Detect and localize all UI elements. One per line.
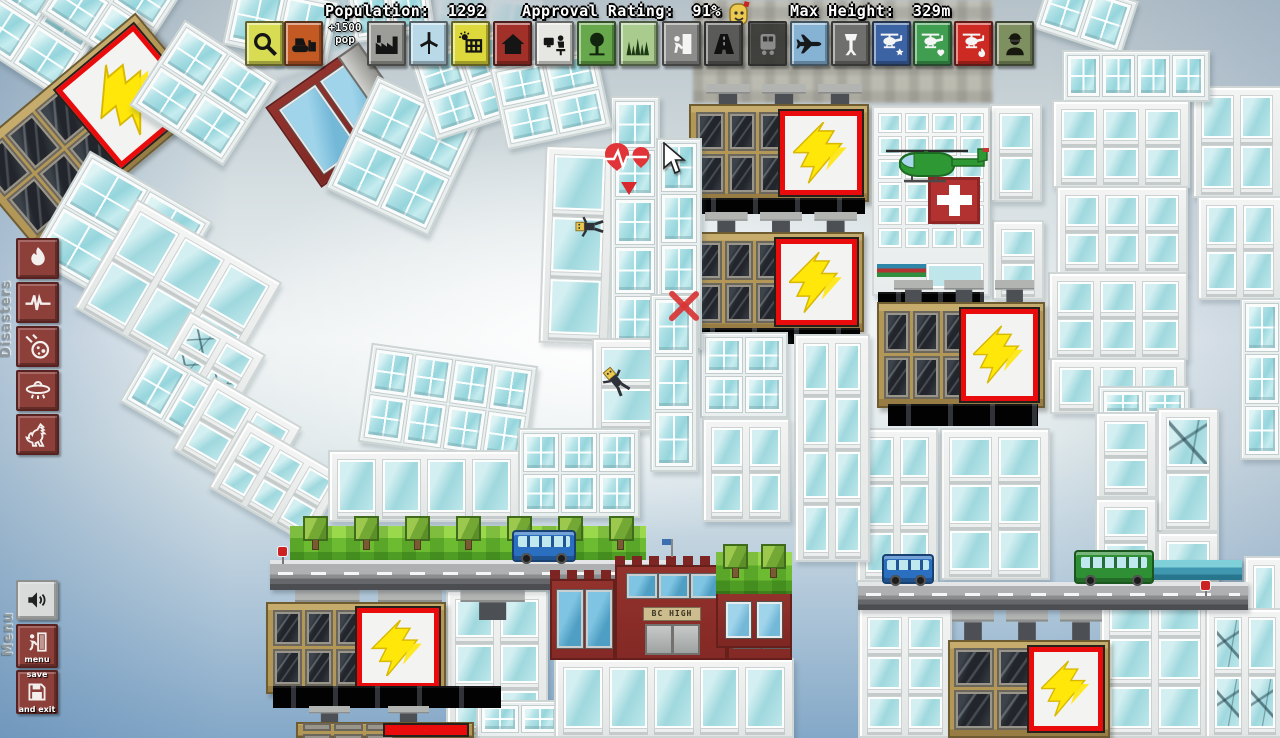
- population-bonus-line2: pop: [322, 34, 368, 46]
- grass-icon: [624, 29, 654, 59]
- toolbar-office-button[interactable]: [535, 21, 574, 66]
- soldier-icon: [1000, 29, 1030, 59]
- approval-value: 91%: [693, 2, 722, 20]
- road-icon: [709, 29, 739, 59]
- population-bonus-label: +1500 pop: [322, 22, 368, 46]
- toolbar-soldier-button[interactable]: [995, 21, 1034, 66]
- police-helicopter-icon: [877, 29, 907, 59]
- save-exit-button[interactable]: saveand exit: [16, 670, 58, 714]
- toolbar-wind-turbine-button[interactable]: [409, 21, 448, 66]
- save-disk-icon: [24, 679, 50, 705]
- toolbar-factory-button[interactable]: [367, 21, 406, 66]
- godzilla-icon: [23, 420, 53, 450]
- menu-button[interactable]: menu: [16, 624, 58, 668]
- max-height-stat: Max Height:329m: [790, 2, 951, 20]
- hud-layer: Population:1292 Approval Rating:91% Max …: [0, 0, 1280, 738]
- save-exit-label: and exit: [19, 705, 56, 714]
- exit-door-icon: [24, 629, 50, 655]
- meteor-icon: [23, 332, 53, 362]
- toolbar-fire-helicopter-button[interactable]: [954, 21, 993, 66]
- sound-button[interactable]: [16, 580, 58, 620]
- ufo-icon: [23, 376, 53, 406]
- medic-helicopter-icon: [918, 29, 948, 59]
- approval-label: Approval Rating:: [522, 2, 675, 20]
- toolbar-medic-helicopter-button[interactable]: [913, 21, 952, 66]
- train-icon: [753, 29, 783, 59]
- menu-label: menu: [24, 655, 49, 664]
- toolbar-bulldozer-button[interactable]: [284, 21, 323, 66]
- max-height-value: 329m: [913, 2, 951, 20]
- menu-sidebar-label: Menu: [1, 612, 16, 656]
- magnifier-icon: [250, 29, 280, 59]
- toolbar-magnifier-button[interactable]: [245, 21, 284, 66]
- max-height-label: Max Height:: [790, 2, 895, 20]
- tree-icon: [582, 29, 612, 59]
- toolbar-airplane-button[interactable]: [790, 21, 829, 66]
- wind-turbine-icon: [414, 29, 444, 59]
- save-exit-label-top: save: [27, 670, 48, 679]
- toolbar-tenant-button[interactable]: [662, 21, 701, 66]
- factory-icon: [372, 29, 402, 59]
- population-value: 1292: [448, 2, 486, 20]
- speaker-icon: [24, 587, 50, 613]
- tenant-icon: [667, 29, 697, 59]
- airplane-icon: [795, 29, 825, 59]
- disaster-fire-button[interactable]: [16, 238, 59, 279]
- approval-stat: Approval Rating:91%: [522, 2, 721, 20]
- toolbar-house-button[interactable]: [493, 21, 532, 66]
- toolbar-tree-button[interactable]: [577, 21, 616, 66]
- airport-tower-icon: [836, 29, 866, 59]
- game-window: BC HIGH Population:129: [0, 0, 1280, 738]
- bulldozer-icon: [289, 29, 319, 59]
- disaster-godzilla-button[interactable]: [16, 414, 59, 455]
- disaster-ufo-button[interactable]: [16, 370, 59, 411]
- toolbar-solar-panel-button[interactable]: [451, 21, 490, 66]
- disaster-meteor-button[interactable]: [16, 326, 59, 367]
- toolbar-airport-tower-button[interactable]: [831, 21, 870, 66]
- toolbar-police-helicopter-button[interactable]: [872, 21, 911, 66]
- toolbar-road-button[interactable]: [704, 21, 743, 66]
- toolbar-grass-button[interactable]: [619, 21, 658, 66]
- solar-panel-icon: [456, 29, 486, 59]
- house-icon: [498, 29, 528, 59]
- office-icon: [540, 29, 570, 59]
- fire-helicopter-icon: [959, 29, 989, 59]
- toolbar-train-button[interactable]: [748, 21, 787, 66]
- mouse-cursor: [662, 142, 688, 176]
- population-label: Population:: [325, 2, 430, 20]
- disasters-sidebar-label: Disasters: [0, 280, 14, 358]
- fire-icon: [23, 244, 53, 274]
- population-stat: Population:1292: [325, 2, 486, 20]
- disaster-earthquake-button[interactable]: [16, 282, 59, 323]
- earthquake-icon: [23, 288, 53, 318]
